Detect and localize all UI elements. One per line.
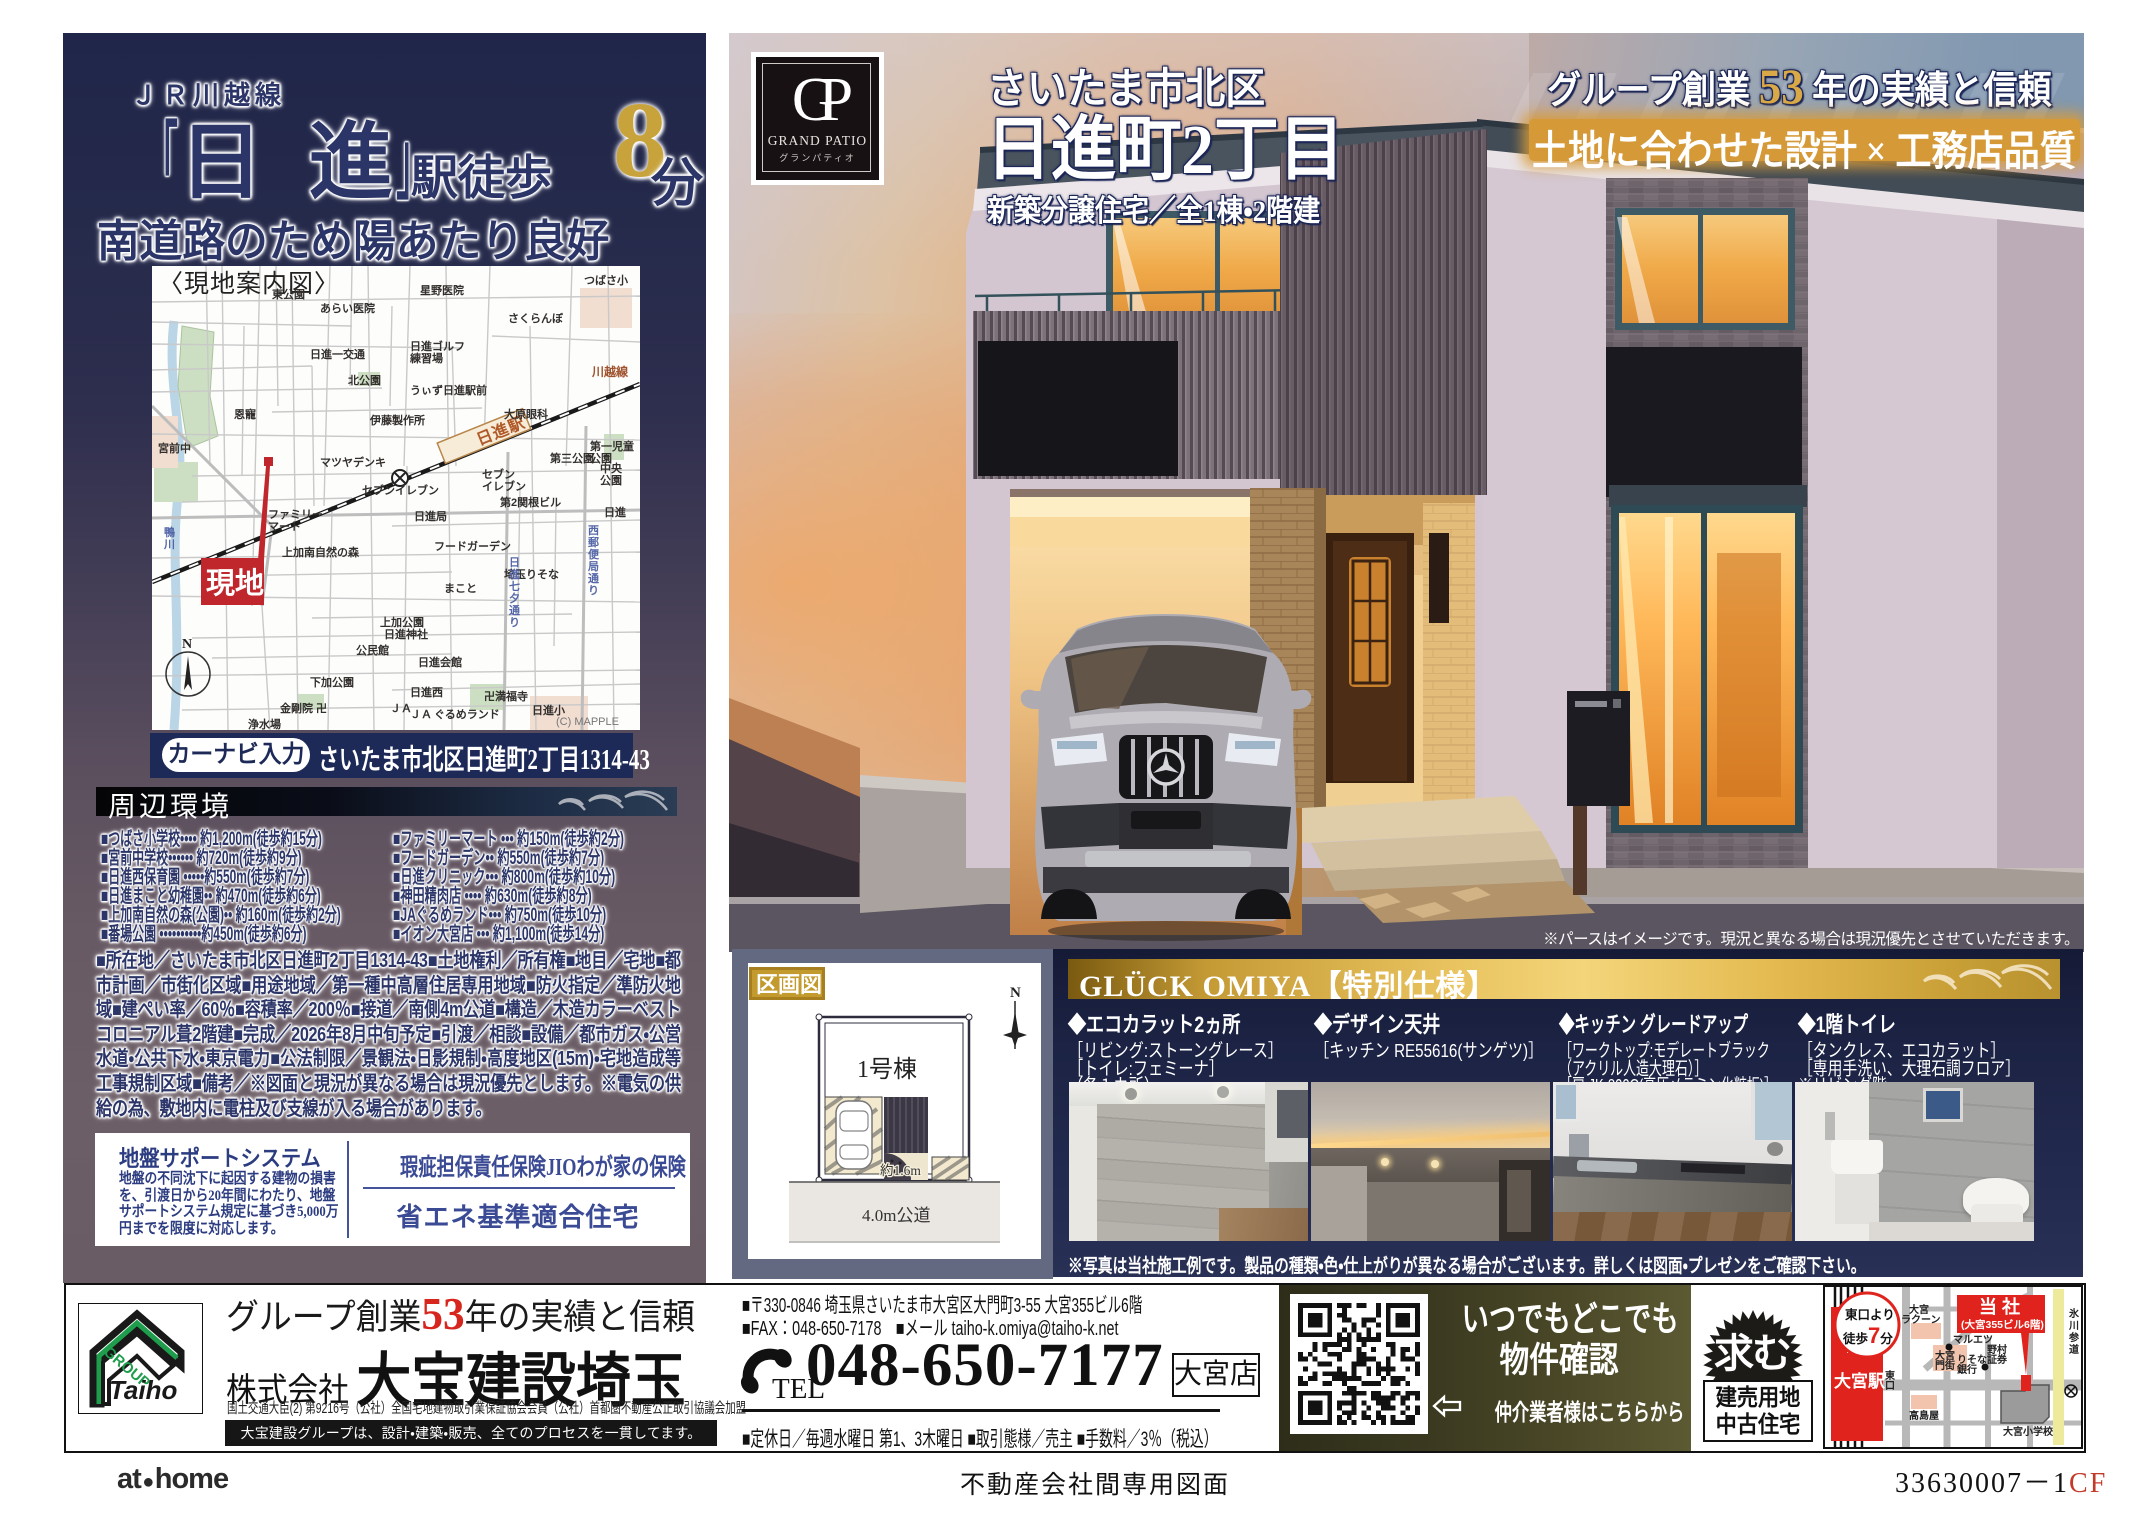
svg-text:川: 川 xyxy=(2068,1320,2079,1332)
svg-text:氷: 氷 xyxy=(2068,1307,2080,1320)
svg-text:通: 通 xyxy=(509,603,521,617)
svg-text:約1.6m: 約1.6m xyxy=(880,1163,921,1178)
svg-text:日進小: 日進小 xyxy=(532,703,565,717)
svg-text:郵: 郵 xyxy=(588,535,599,549)
svg-text:ラクーン: ラクーン xyxy=(1901,1314,1941,1326)
svg-text:ぐるめランド: ぐるめランド xyxy=(434,708,500,721)
svg-text:証券: 証券 xyxy=(1987,1353,2008,1366)
svg-text:つばさ小: つばさ小 xyxy=(584,273,628,287)
svg-text:求む: 求む xyxy=(1714,1332,1792,1376)
svg-text:西: 西 xyxy=(588,524,599,537)
svg-text:第一児童: 第一児童 xyxy=(590,439,634,453)
svg-text:うぃず日進駅前: うぃず日進駅前 xyxy=(410,383,487,397)
svg-text:北公園: 北公園 xyxy=(348,373,381,387)
svg-text:※パースはイメージです。現況と異なる場合は現況優先とさせてい: ※パースはイメージです。現況と異なる場合は現況優先とさせていただきます。 xyxy=(1543,930,2079,948)
svg-text:日進会館: 日進会館 xyxy=(418,655,462,669)
svg-text:鴨: 鴨 xyxy=(164,525,175,539)
svg-text:大原眼科: 大原眼科 xyxy=(504,407,548,421)
svg-text:局: 局 xyxy=(587,560,599,573)
svg-text:り: り xyxy=(509,616,520,629)
svg-text:恩寵: 恩寵 xyxy=(234,407,256,421)
svg-text:第三公園: 第三公園 xyxy=(550,451,594,465)
svg-text:宮前中: 宮前中 xyxy=(158,441,191,455)
svg-text:中央: 中央 xyxy=(600,461,623,475)
svg-text:N: N xyxy=(182,637,192,652)
svg-text:〈現地案内図〉: 〈現地案内図〉 xyxy=(158,270,340,298)
svg-text:金剛院 卍: 金剛院 卍 xyxy=(280,701,327,715)
svg-text:日進ゴルフ: 日進ゴルフ xyxy=(410,339,465,353)
svg-text:(大宮355ビル6階): (大宮355ビル6階) xyxy=(1961,1318,2044,1331)
svg-text:日: 日 xyxy=(509,556,520,569)
svg-text:ＪＡ: ＪＡ xyxy=(390,702,412,715)
svg-text:ファミリー: ファミリー xyxy=(268,508,323,521)
svg-text:フードガーデン: フードガーデン xyxy=(434,539,511,553)
svg-text:七: 七 xyxy=(509,579,520,593)
svg-text:口: 口 xyxy=(1885,1381,1895,1392)
svg-text:道: 道 xyxy=(2069,1343,2080,1356)
svg-text:便: 便 xyxy=(588,547,600,561)
svg-text:あらい医院: あらい医院 xyxy=(320,301,375,315)
svg-text:(C) MAPPLE: (C) MAPPLE xyxy=(556,716,619,728)
svg-text:まこと: まこと xyxy=(444,582,477,595)
svg-text:大宮小学校: 大宮小学校 xyxy=(2003,1425,2054,1438)
svg-text:上加南自然の森: 上加南自然の森 xyxy=(282,545,360,559)
svg-text:イレブン: イレブン xyxy=(482,479,526,493)
svg-text:公園: 公園 xyxy=(600,474,622,487)
svg-text:星野医院: 星野医院 xyxy=(420,283,464,297)
svg-text:川越線: 川越線 xyxy=(591,364,629,379)
svg-text:さくらんぼ: さくらんぼ xyxy=(508,312,564,325)
svg-text:現地: 現地 xyxy=(206,567,264,600)
svg-text:区画図: 区画図 xyxy=(756,972,822,997)
svg-text:日進西: 日進西 xyxy=(410,685,443,699)
svg-text:練習場: 練習場 xyxy=(409,351,443,365)
svg-text:1号棟: 1号棟 xyxy=(857,1056,917,1083)
svg-text:上加公園: 上加公園 xyxy=(380,615,424,629)
svg-text:ＪＡ: ＪＡ xyxy=(410,708,432,721)
svg-text:4.0m公道: 4.0m公道 xyxy=(862,1206,930,1225)
svg-text:下加公園: 下加公園 xyxy=(310,675,354,689)
svg-text:進: 進 xyxy=(509,567,520,581)
svg-text:参: 参 xyxy=(2068,1331,2080,1344)
svg-text:セブン: セブン xyxy=(482,467,515,481)
svg-text:伊藤製作所: 伊藤製作所 xyxy=(369,413,425,427)
svg-text:日進神社: 日進神社 xyxy=(384,627,428,641)
svg-text:公民館: 公民館 xyxy=(356,643,389,657)
svg-text:通: 通 xyxy=(588,571,600,585)
svg-text:銀行: 銀行 xyxy=(1956,1363,1977,1376)
svg-text:日進局: 日進局 xyxy=(414,509,447,523)
svg-text:大宮駅: 大宮駅 xyxy=(1834,1371,1886,1391)
svg-text:浄水場: 浄水場 xyxy=(248,717,281,730)
svg-text:第2関根ビル: 第2関根ビル xyxy=(500,495,561,509)
svg-text:マート: マート xyxy=(268,520,301,533)
svg-text:川: 川 xyxy=(163,538,175,551)
svg-text:東口より: 東口より xyxy=(1845,1307,1895,1322)
svg-text:セブンイレブン: セブンイレブン xyxy=(362,483,439,497)
svg-text:N: N xyxy=(1010,985,1021,1001)
svg-text:り: り xyxy=(588,584,599,597)
svg-text:日進: 日進 xyxy=(604,505,626,519)
svg-text:高島屋: 高島屋 xyxy=(1909,1409,1939,1422)
svg-text:当 社: 当 社 xyxy=(1979,1296,2020,1317)
svg-text:Taiho: Taiho xyxy=(109,1375,177,1405)
svg-text:夕: 夕 xyxy=(509,591,520,605)
svg-text:門街: 門街 xyxy=(1935,1359,1955,1372)
svg-text:マツヤデンキ: マツヤデンキ xyxy=(320,455,386,469)
svg-text:東公園: 東公園 xyxy=(272,287,305,301)
svg-text:卍満福寺: 卍満福寺 xyxy=(484,689,528,703)
svg-text:日進一交通: 日進一交通 xyxy=(310,347,366,361)
